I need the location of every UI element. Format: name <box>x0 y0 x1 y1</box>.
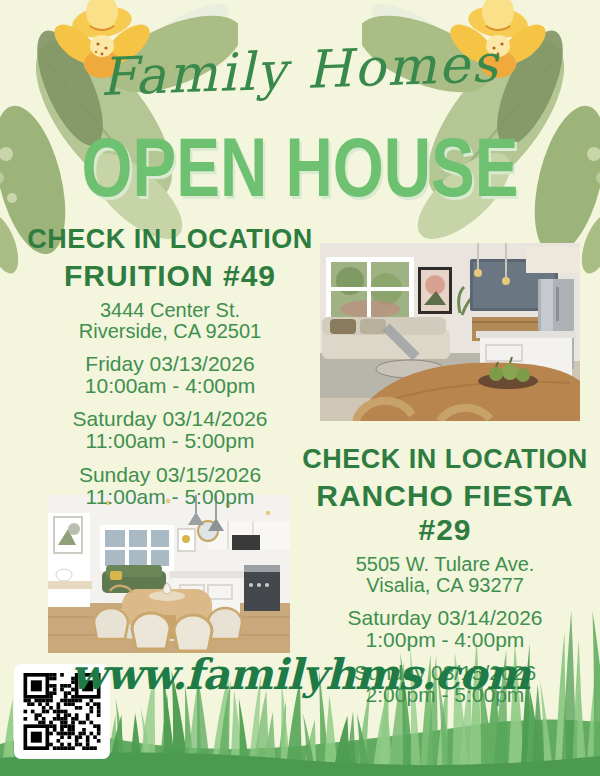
session-day: Friday 03/13/2026 <box>8 353 332 375</box>
session: Saturday 03/14/2026 1:00pm - 4:00pm <box>296 607 594 652</box>
session-time: 11:00am - 5:00pm <box>8 486 332 508</box>
community-name: FRUITION #49 <box>8 259 332 293</box>
photo-interior-living-kitchen <box>320 243 580 421</box>
check-in-heading: CHECK IN LOCATION <box>296 444 594 475</box>
address: 3444 Center St. Riverside, CA 92501 <box>8 300 332 342</box>
brand-script-title: Family Homes <box>0 30 600 111</box>
session: Saturday 03/14/2026 11:00am - 5:00pm <box>8 408 332 453</box>
website-text: www.familyhms.com <box>0 650 600 699</box>
address-line-2: Visalia, CA 93277 <box>296 575 594 596</box>
session-day: Saturday 03/14/2026 <box>296 607 594 629</box>
page-title: OPEN HOUSE <box>66 132 534 202</box>
session-time: 11:00am - 5:00pm <box>8 430 332 452</box>
open-house-flyer: Family Homes OPEN HOUSE CHECK IN LOCATIO… <box>0 0 600 776</box>
session-day: Saturday 03/14/2026 <box>8 408 332 430</box>
address-line-2: Riverside, CA 92501 <box>8 321 332 342</box>
session: Sunday 03/15/2026 11:00am - 5:00pm <box>8 464 332 509</box>
address: 5505 W. Tulare Ave. Visalia, CA 93277 <box>296 554 594 596</box>
session-day: Sunday 03/15/2026 <box>8 464 332 486</box>
session-time: 10:00am - 4:00pm <box>8 375 332 397</box>
location-section-fruition: CHECK IN LOCATION FRUITION #49 3444 Cent… <box>8 224 332 508</box>
session-time: 1:00pm - 4:00pm <box>296 629 594 651</box>
check-in-heading: CHECK IN LOCATION <box>8 224 332 255</box>
photo-interior-dining-kitchen <box>48 495 290 653</box>
community-name: RANCHO FIESTA #29 <box>296 479 594 547</box>
address-line-1: 3444 Center St. <box>8 300 332 321</box>
address-line-1: 5505 W. Tulare Ave. <box>296 554 594 575</box>
session: Friday 03/13/2026 10:00am - 4:00pm <box>8 353 332 398</box>
